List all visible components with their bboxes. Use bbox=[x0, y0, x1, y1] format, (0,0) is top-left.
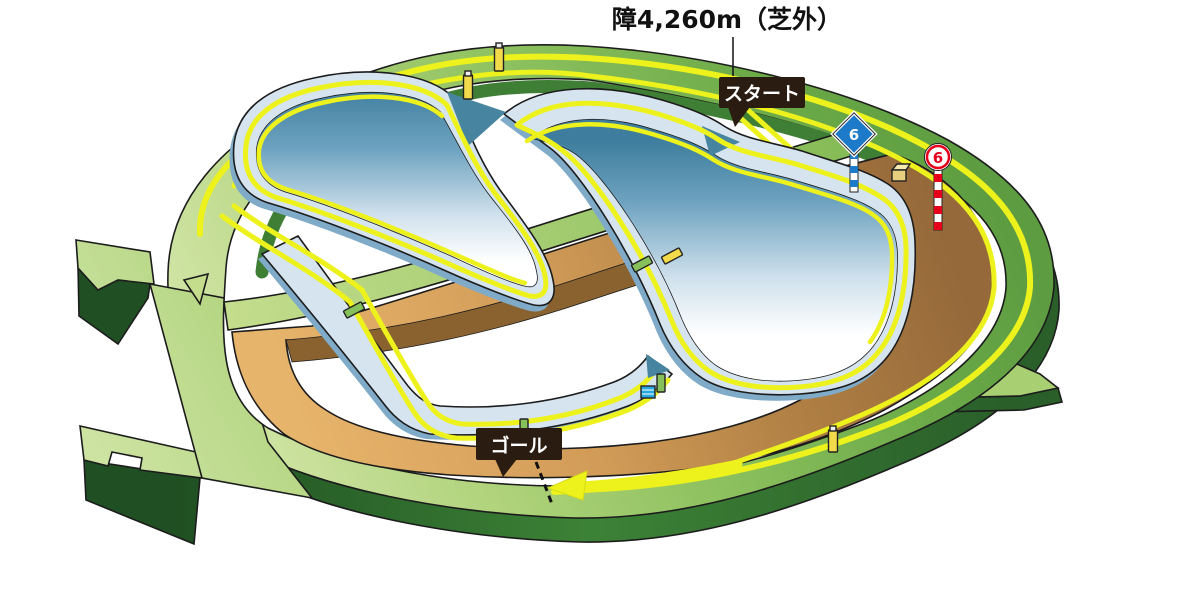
hurdle-icon bbox=[495, 43, 504, 71]
water-jump-icon bbox=[641, 386, 655, 398]
hurdle-icon bbox=[829, 426, 838, 452]
start-label: スタート bbox=[724, 83, 800, 105]
red-marker-number: 6 bbox=[933, 149, 943, 167]
hurdle-icon bbox=[657, 374, 665, 392]
goal-label: ゴール bbox=[490, 434, 547, 457]
course-map-svg: 6 6 障4,260m（芝外） スタート ゴール bbox=[0, 0, 1198, 616]
distance-label: 障4,260m（芝外） bbox=[612, 5, 842, 34]
blue-marker-number: 6 bbox=[849, 126, 859, 144]
course-map-page: 6 6 障4,260m（芝外） スタート ゴール bbox=[0, 0, 1198, 616]
hurdle-icon bbox=[464, 71, 473, 99]
